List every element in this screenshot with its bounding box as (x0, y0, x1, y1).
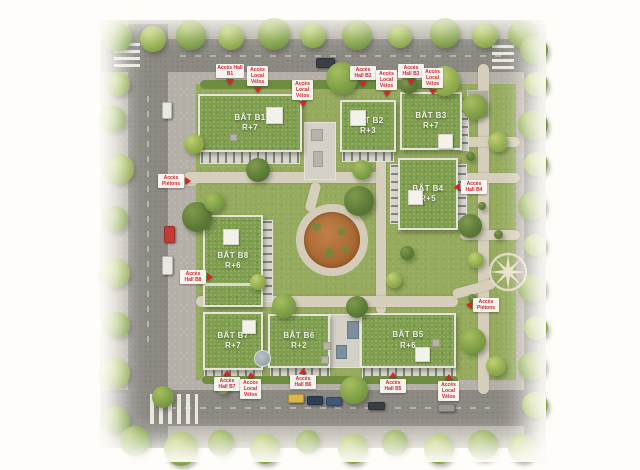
arrow-left-icon (454, 183, 460, 191)
building-b2: BÂT B2 R+3 (340, 100, 396, 152)
parked-car (162, 102, 172, 119)
tree (300, 22, 326, 48)
arrow-right-icon (185, 177, 191, 185)
tree (518, 352, 546, 380)
arrow-up-icon (223, 370, 231, 376)
building-b4: BÂT B4 R+5 (398, 158, 458, 230)
tree (488, 132, 508, 152)
tree (250, 274, 266, 290)
building-level: R+2 (291, 341, 307, 351)
tree (424, 434, 454, 464)
tree (152, 386, 174, 408)
tree (458, 214, 482, 238)
tree (524, 316, 548, 340)
building-level: R+7 (225, 341, 241, 351)
parked-car (288, 394, 304, 403)
tree (204, 192, 224, 212)
building-level: R+7 (423, 121, 439, 131)
roof-skylight (350, 110, 366, 126)
building-name: BÂT B6 (283, 331, 314, 341)
roof-skylight (408, 190, 423, 205)
tree (296, 430, 320, 454)
tree (430, 18, 460, 48)
access-hall-b8: Accès Hall B8 (180, 270, 213, 284)
tree (524, 72, 548, 96)
tree (100, 106, 126, 132)
road-marking (147, 96, 149, 346)
arrow-up-icon (389, 372, 397, 378)
central-garden (304, 212, 360, 268)
compass-rose-icon (486, 250, 530, 294)
tree (102, 206, 128, 232)
tree (272, 294, 296, 318)
tree (524, 152, 548, 176)
tree (518, 110, 548, 140)
parked-car (307, 396, 323, 405)
arrow-down-icon (359, 81, 367, 87)
arrow-down-icon (226, 79, 234, 85)
roof-skylight (223, 229, 239, 245)
tree (218, 24, 244, 50)
tree (100, 258, 130, 288)
arrow-down-icon (429, 89, 437, 95)
access-hall-b7: Accès Hall B7 (214, 370, 240, 391)
tree (246, 158, 270, 182)
building-level: R+6 (400, 341, 416, 351)
b6-annex-roof (330, 314, 360, 368)
tree (518, 192, 546, 220)
tree (176, 20, 206, 50)
arrow-up-icon (299, 368, 307, 374)
building-b5: BÂT B5 R+6 (360, 313, 456, 368)
access-local-velos: Accès Local Vélos (240, 372, 261, 399)
access-hall-b5: Accès Hall B5 (380, 372, 406, 393)
rooftop-dome (254, 350, 271, 367)
arrow-down-icon (383, 91, 391, 97)
arrow-down-icon (407, 79, 415, 85)
access-local-velos: Accès Local Vélos (247, 66, 268, 93)
parked-car (438, 404, 455, 412)
tree (258, 18, 290, 50)
shrub (478, 202, 486, 210)
tree (386, 272, 402, 288)
tree (522, 392, 548, 418)
roof-skylight (242, 320, 256, 334)
tree (352, 160, 372, 180)
site-plan-image: BÂT B1 R+7 BÂT B2 R+3 BÂT B3 R+7 BÂT B4 … (0, 0, 640, 470)
access-local-velos: Accès Local Vélos (422, 68, 443, 95)
tree (106, 72, 130, 96)
tree (140, 26, 166, 52)
tree (104, 154, 134, 184)
parked-van (162, 256, 173, 275)
tree (250, 434, 280, 464)
access-hall-b2: Accès Hall B2 (350, 66, 376, 87)
roof-skylight (438, 134, 453, 149)
access-local-velos: Accès Local Vélos (292, 80, 313, 107)
tree (460, 328, 486, 354)
access-local-velos: Accès Local Vélos (376, 70, 397, 97)
shrub (466, 152, 475, 161)
tree (104, 312, 130, 338)
tree (472, 22, 498, 48)
tree (100, 358, 130, 388)
tree (344, 186, 374, 216)
access-hall-b1: Accès Hall B1 (216, 64, 244, 85)
tree (346, 296, 368, 318)
roof-skylight (415, 347, 430, 362)
access-hall-b4: Accès Hall B4 (454, 180, 487, 194)
tree (388, 24, 412, 48)
arrow-down-icon (299, 101, 307, 107)
aerial-render: BÂT B1 R+7 BÂT B2 R+3 BÂT B3 R+7 BÂT B4 … (100, 6, 546, 462)
tree (520, 36, 548, 64)
arrow-up-icon (247, 372, 255, 378)
tree (462, 94, 488, 120)
parked-car (164, 226, 175, 243)
tree (120, 426, 150, 456)
tree (382, 430, 408, 456)
access-pietons-east: Accès Piétons (466, 298, 499, 312)
access-hall-b3: Accès Hall B3 (398, 64, 424, 85)
road-marking (180, 55, 510, 57)
building-b8: BÂT B8 R+6 (203, 215, 263, 307)
building-level: R+7 (242, 123, 258, 133)
building-b6: BÂT B6 R+2 (268, 314, 330, 368)
tree (338, 434, 368, 464)
building-name: BÂT B5 (392, 330, 423, 340)
tree (400, 246, 414, 260)
access-hall-b6: Accès Hall B6 (290, 368, 316, 389)
arrow-left-icon (466, 301, 472, 309)
arrow-down-icon (254, 87, 262, 93)
arrow-up-icon (445, 374, 453, 380)
building-b1: BÂT B1 R+7 (198, 94, 302, 152)
tree (342, 20, 372, 50)
building-name: BÂT B8 (217, 251, 248, 261)
crosswalk (492, 45, 514, 69)
tree (508, 434, 536, 462)
tree (340, 376, 368, 404)
parked-car (368, 402, 385, 410)
tree (208, 430, 234, 456)
arrow-right-icon (207, 273, 213, 281)
access-local-velos: Accès Local Vélos (438, 374, 459, 401)
tree (184, 134, 204, 154)
building-b3: BÂT B3 R+7 (400, 92, 462, 150)
building-name: BÂT B3 (415, 111, 446, 121)
building-level: R+6 (225, 261, 241, 271)
building-level: R+3 (360, 126, 376, 136)
entrance-structure (304, 122, 336, 180)
garden-path (376, 154, 386, 314)
tree (164, 432, 198, 466)
tree (468, 430, 498, 460)
shrub (494, 230, 503, 239)
access-pietons-west: Accès Piétons (158, 174, 191, 188)
tree (102, 22, 132, 52)
parked-car (326, 397, 342, 406)
roof-skylight (266, 107, 283, 124)
building-name: BÂT B1 (234, 113, 265, 123)
tree (468, 252, 484, 268)
tree (486, 356, 506, 376)
